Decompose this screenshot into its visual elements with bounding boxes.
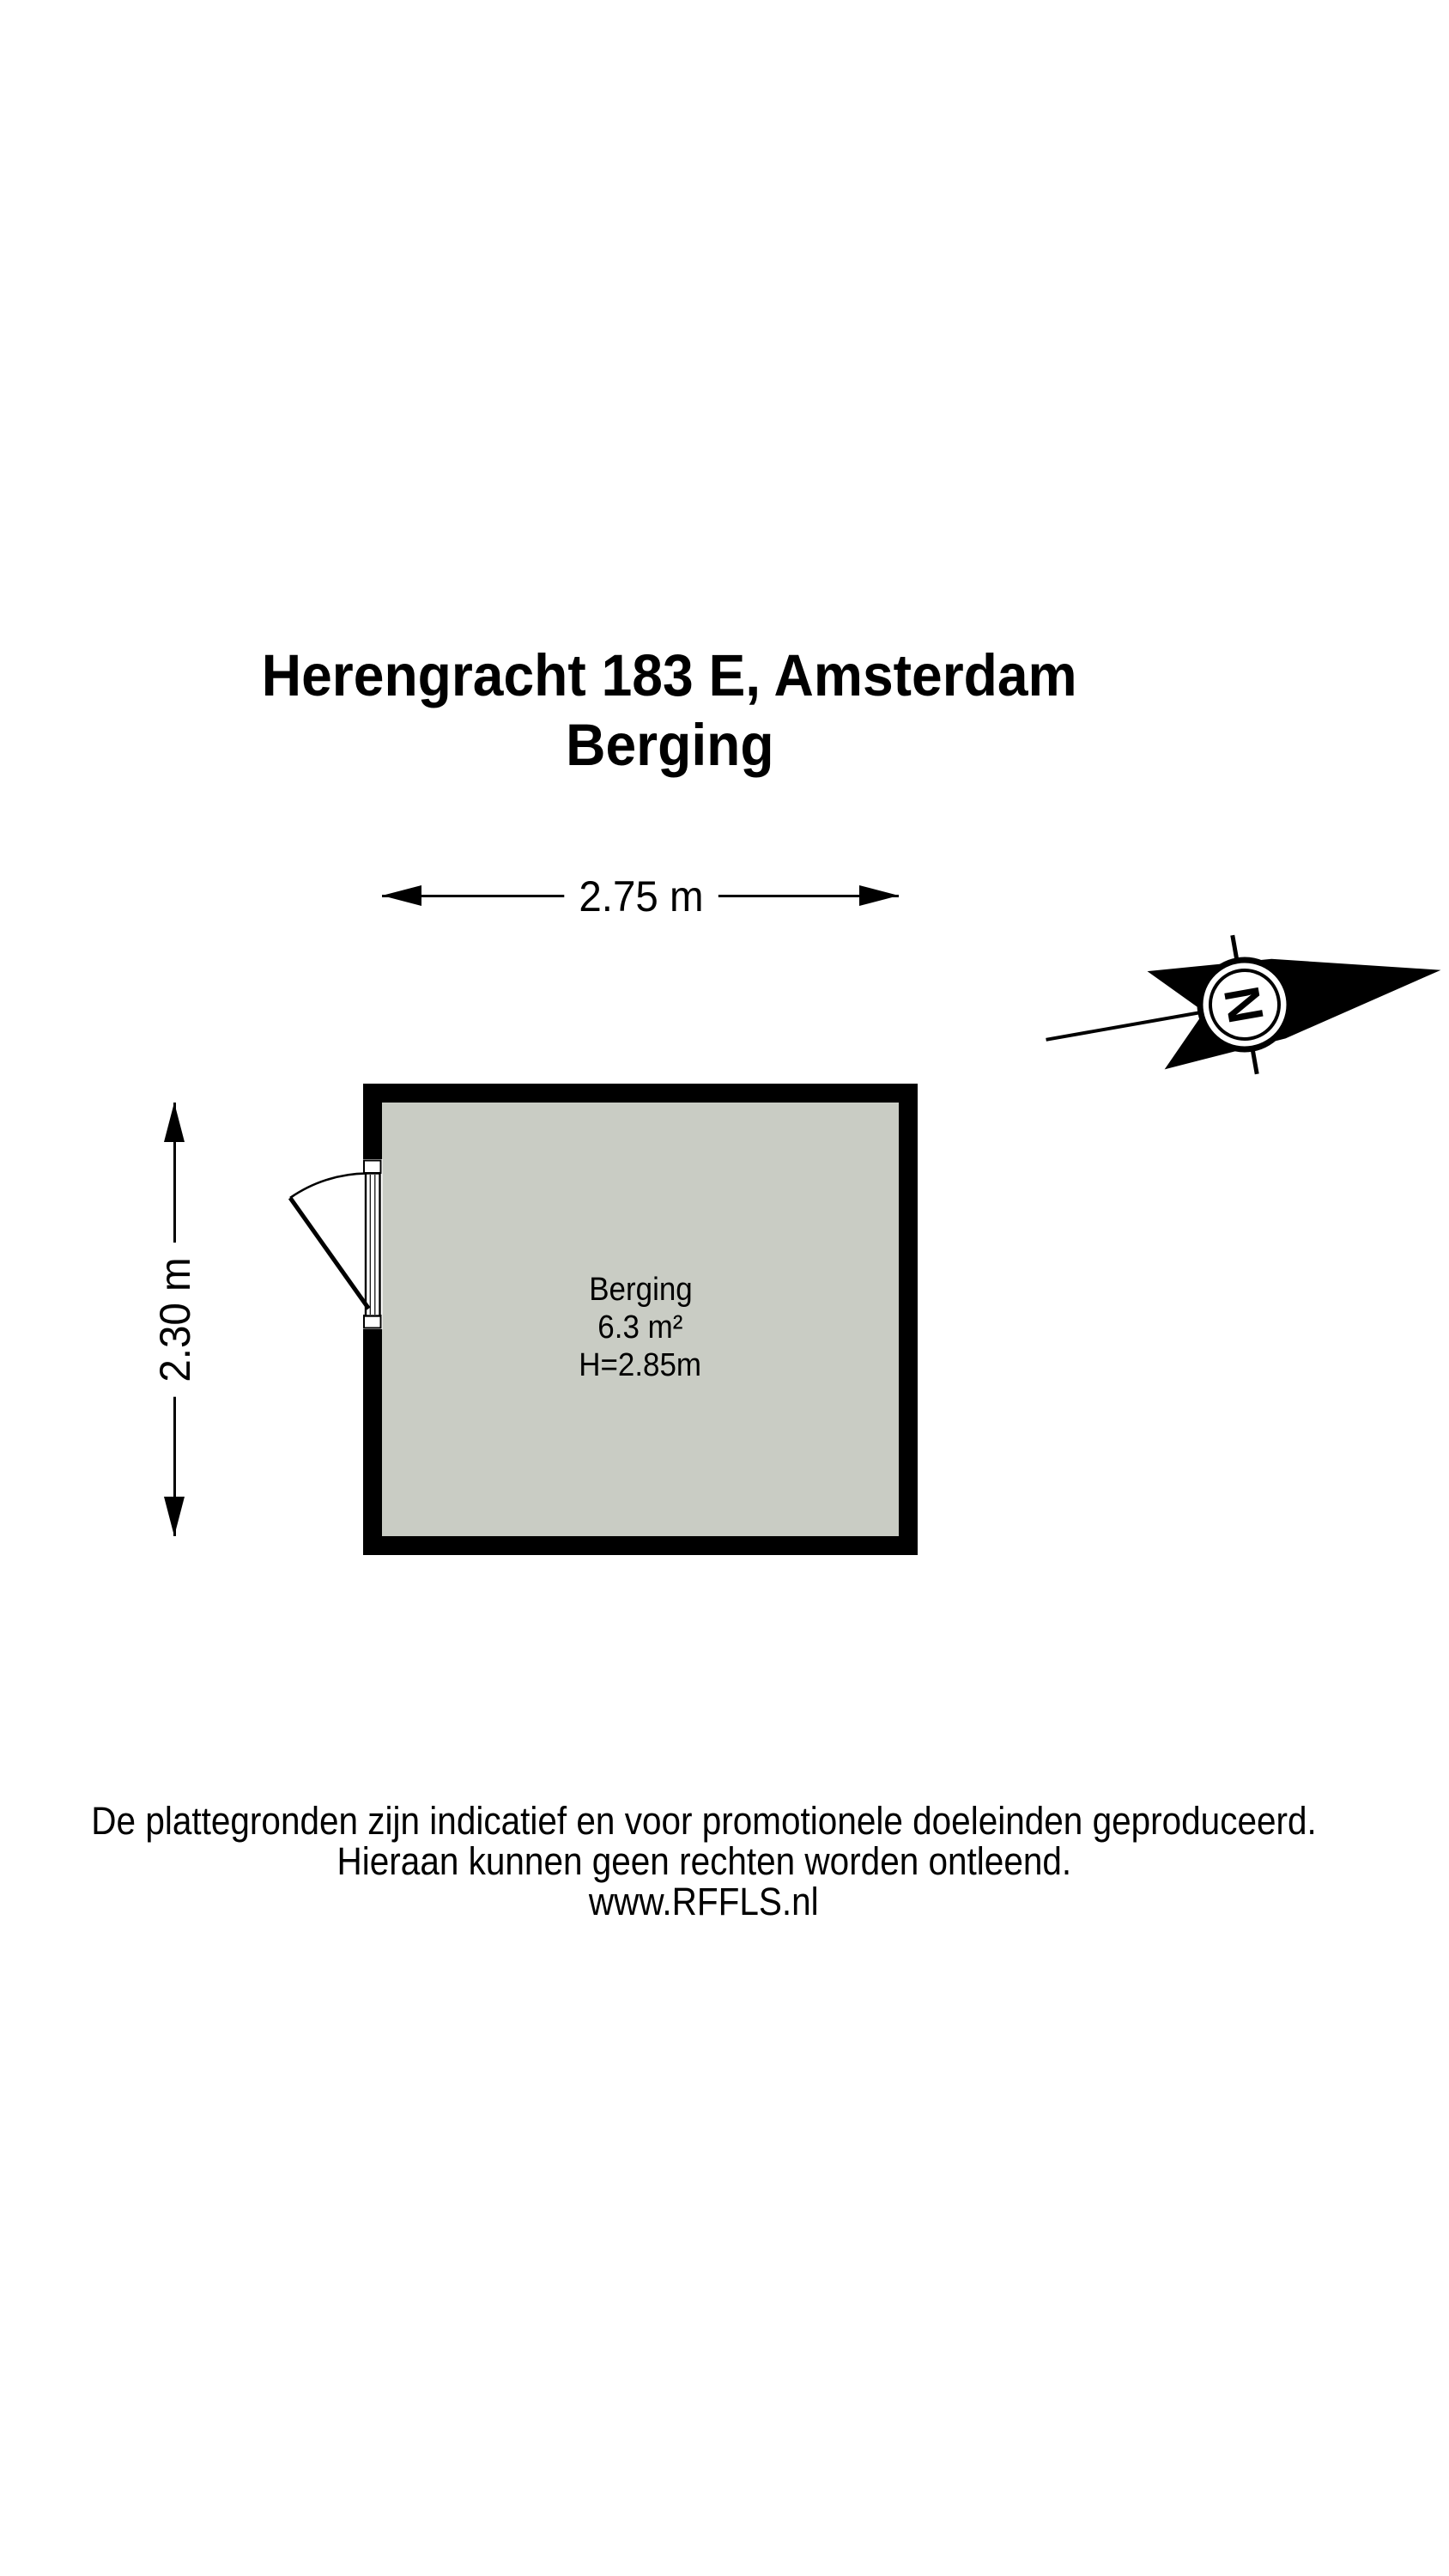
footer-website: www.RFFLS.nl [0,1881,1408,1922]
room-ceiling-height: H=2.85m [0,1346,1281,1384]
title-block: Herengracht 183 E, Amsterdam Berging [0,641,1339,780]
page-subtitle: Berging [0,710,1339,780]
page-title: Herengracht 183 E, Amsterdam [0,641,1339,710]
north-arrow-icon: N [1030,910,1449,1082]
arrow-up-icon [164,1103,185,1142]
room-name: Berging [0,1271,1281,1309]
footer-line-1: De plattegronden zijn indicatief en voor… [0,1801,1408,1841]
dimension-width-label: 2.75 m [564,870,718,923]
footer-line-2: Hieraan kunnen geen rechten worden ontle… [0,1841,1408,1881]
arrow-right-icon [859,885,899,906]
floorplan-page: Herengracht 183 E, Amsterdam Berging 2.7… [0,0,1449,2576]
arrow-left-icon [382,885,421,906]
room-label-block: Berging 6.3 m² H=2.85m [0,1271,1281,1384]
room-area: 6.3 m² [0,1309,1281,1346]
footer-disclaimer: De plattegronden zijn indicatief en voor… [0,1801,1408,1922]
arrow-down-icon [164,1497,185,1536]
